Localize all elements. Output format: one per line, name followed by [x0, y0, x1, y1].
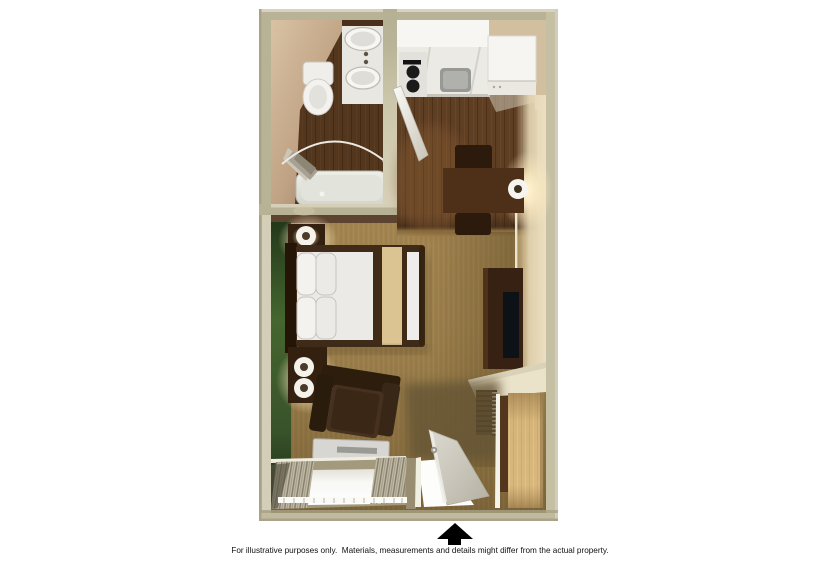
svg-text:For illustrative purposes only: For illustrative purposes only. Material… — [231, 546, 608, 555]
